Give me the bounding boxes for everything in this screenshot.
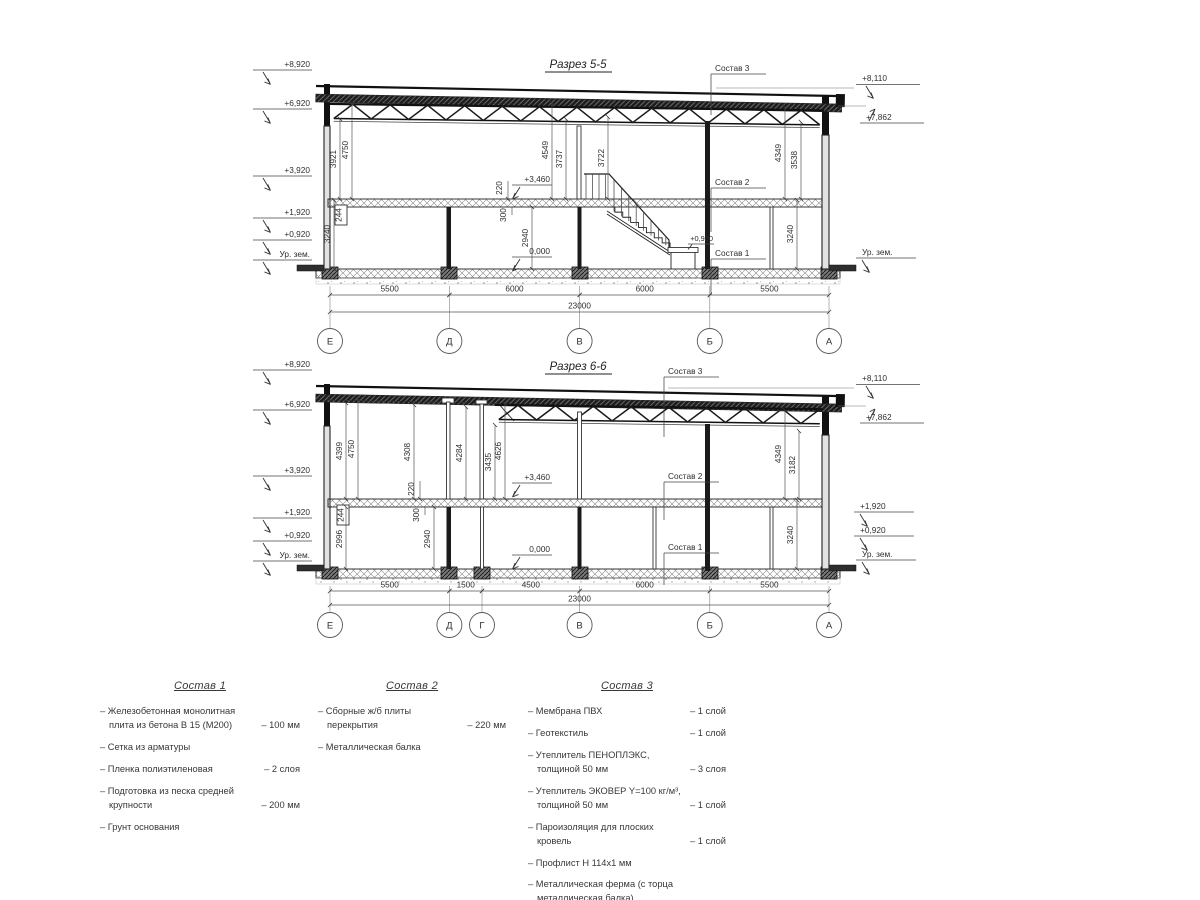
legend-item: Профлист Н 114х1 мм <box>528 857 726 871</box>
dim-label: 23000 <box>568 595 591 604</box>
column-b <box>705 424 710 571</box>
legend-item: Утеплитель ПЕНОПЛЭКС, толщиной 50 мм– 3 … <box>528 749 726 777</box>
axis-label: Е <box>327 337 333 348</box>
drawing-element <box>263 520 271 533</box>
dim-label: 5500 <box>381 285 400 294</box>
elevation-label: +8,920 <box>284 59 310 69</box>
drawing-element <box>836 394 845 407</box>
level-marks: +3,460 0,000 <box>512 472 552 569</box>
elevation-label: +0,920 <box>284 530 310 540</box>
dim-label: 4626 <box>494 441 503 460</box>
callout-label: Состав 1 <box>715 248 750 258</box>
drawing-element <box>513 485 521 497</box>
dim-label: 2996 <box>335 529 344 548</box>
elevation-label: +6,920 <box>284 399 310 409</box>
material-value: – 3 слоя <box>690 763 726 777</box>
right-wall <box>822 95 829 135</box>
dim-label: 1500 <box>457 581 476 590</box>
material-name: Металлическая ферма (с торца металлическ… <box>528 878 726 900</box>
material-name: Пароизоляция для плоских кровель <box>528 821 690 849</box>
legend-item: Металлическая балка <box>318 741 506 755</box>
drawing-element <box>862 260 870 273</box>
dim-label: 4284 <box>455 443 464 462</box>
dim-label: 6000 <box>505 285 524 294</box>
staircase <box>584 174 698 269</box>
floor-slab <box>328 499 822 507</box>
drawing-element <box>297 565 324 571</box>
dimension-chain: 5500 6000 6000 5500 23000 <box>330 285 829 329</box>
dim-label: 3737 <box>555 149 564 168</box>
drawing-element <box>316 386 842 396</box>
material-name: Профлист Н 114х1 мм <box>528 857 726 871</box>
left-wall <box>324 84 330 126</box>
dim-label: 4549 <box>541 140 550 159</box>
dim-label: 2940 <box>423 529 432 548</box>
dim-label: 220 <box>495 181 504 195</box>
material-name: Грунт основания <box>100 821 300 835</box>
material-name: Утеплитель ПЕНОПЛЭКС, толщиной 50 мм <box>528 749 690 777</box>
section-title: Разрез 5-5 <box>550 59 608 71</box>
dim-label: 6000 <box>636 581 655 590</box>
drawing-element <box>862 562 870 575</box>
dim-label: 4399 <box>335 441 344 460</box>
dim-label: 4349 <box>774 444 783 463</box>
axis-label: В <box>576 621 582 632</box>
legend-sostav-1: Состав 1 Железобетонная монолитная плита… <box>100 680 300 843</box>
elevation-label: Ур. зем. <box>280 249 310 259</box>
drawing-element <box>607 214 670 255</box>
legend-item: Пароизоляция для плоских кровель– 1 слой <box>528 821 726 849</box>
drawing-element <box>263 220 271 233</box>
legend-item: Геотекстиль– 1 слой <box>528 727 726 741</box>
column <box>447 507 452 569</box>
dim-label: 5500 <box>760 285 779 294</box>
material-name: Утеплитель ЭКОВЕР Y=100 кг/м³, толщиной … <box>528 785 690 813</box>
elevation-label: +7,862 <box>866 112 892 122</box>
column-b <box>705 121 710 269</box>
material-value: – 200 мм <box>261 799 300 813</box>
legend-item: Железобетонная монолитная плита из бетон… <box>100 705 300 733</box>
dim-label: 5500 <box>381 581 400 590</box>
column <box>578 412 582 499</box>
dim-label: 3921 <box>329 149 338 168</box>
stair-handrail <box>584 174 669 247</box>
legend-item: Сборные ж/б плиты перекрытия– 220 мм <box>318 705 506 733</box>
roof-truss <box>495 405 823 427</box>
axis-label: Д <box>446 337 453 348</box>
callout-label: Состав 2 <box>715 177 750 187</box>
material-name: Подготовка из песка средней крупности <box>100 785 261 813</box>
callout-sostav-2: Состав 2 <box>664 471 719 520</box>
dim-label: 4349 <box>774 143 783 162</box>
material-value: – 1 слой <box>690 705 726 719</box>
elevation-label: Ур. зем. <box>280 550 310 560</box>
level-label: +0,900 <box>690 234 713 243</box>
elevation-label: +1,920 <box>860 501 886 511</box>
dim-label: 2940 <box>521 228 530 247</box>
elevation-label: +0,920 <box>860 525 886 535</box>
legend-item: Металлическая ферма (с торца металлическ… <box>528 878 726 900</box>
drawing-element <box>316 86 842 96</box>
section-6-6: Разрез 6-6 Состав 3 Состав 2 Состав 1 <box>253 359 924 638</box>
legend-item: Сетка из арматуры <box>100 741 300 755</box>
dim-label: 3240 <box>786 224 795 243</box>
elevation-label: Ур. зем. <box>862 549 892 559</box>
elevation-label: +8,920 <box>284 359 310 369</box>
callout-label: Состав 3 <box>715 63 750 73</box>
legend-sostav-2: Состав 2 Сборные ж/б плиты перекрытия– 2… <box>318 680 506 763</box>
axis-label: А <box>826 621 833 632</box>
material-value: – 220 мм <box>467 719 506 733</box>
level-marks: +3,460 0,000 +0,900 <box>512 174 714 271</box>
drawing-element <box>263 372 271 385</box>
partition <box>770 507 773 569</box>
drawing-element <box>263 563 271 576</box>
dim-label: 4750 <box>347 439 356 458</box>
dim-label: 5500 <box>760 581 779 590</box>
partition <box>653 507 656 569</box>
dim-label: 244 <box>335 208 344 222</box>
material-name: Пленка полиэтиленовая <box>100 763 264 777</box>
drawing-element <box>822 135 829 269</box>
drawing-element <box>822 435 829 569</box>
elevation-label: +6,920 <box>284 98 310 108</box>
elevation-label: +8,110 <box>862 373 887 383</box>
drawing-element <box>263 242 271 255</box>
floor-slab <box>328 199 822 207</box>
section-title: Разрез 6-6 <box>550 361 608 373</box>
drawing-element <box>513 187 521 199</box>
material-name: Сетка из арматуры <box>100 741 300 755</box>
column-capital <box>476 400 487 404</box>
drawing-element <box>324 126 330 269</box>
axis-label: Д <box>446 621 453 632</box>
elevation-label: +3,920 <box>284 465 310 475</box>
material-value: – 100 мм <box>261 719 300 733</box>
material-value: – 1 слой <box>690 799 726 813</box>
drawing-element <box>263 111 271 124</box>
dim-label: 3240 <box>786 525 795 544</box>
drawing-element <box>829 265 856 271</box>
legend-sostav-3: Состав 3 Мембрана ПВХ– 1 слой Геотекстил… <box>528 680 726 900</box>
material-name: Геотекстиль <box>528 727 690 741</box>
callout-label: Состав 1 <box>668 542 703 552</box>
drawing-element <box>263 178 271 191</box>
axis-label: А <box>826 337 833 348</box>
drawing-element <box>324 426 330 569</box>
dim-label: 3538 <box>790 150 799 169</box>
level-label: +3,460 <box>524 472 550 482</box>
section-5-5: Разрез 5-5 Состав 3 Состав 2 <box>253 59 924 354</box>
material-name: Мембрана ПВХ <box>528 705 690 719</box>
legend-item: Пленка полиэтиленовая– 2 слоя <box>100 763 300 777</box>
axis-label: Г <box>479 621 484 632</box>
drawing-element <box>263 412 271 425</box>
elevation-marks-left: +8,920 +6,920 +3,920 +1,920 +0,920 Ур. з… <box>253 359 312 576</box>
material-value: – 1 слой <box>690 727 726 741</box>
material-value: – 1 слой <box>690 835 726 849</box>
right-wall <box>822 395 829 435</box>
legend-item: Подготовка из песка средней крупности– 2… <box>100 785 300 813</box>
column <box>578 507 582 569</box>
elevation-label: Ур. зем. <box>862 247 892 257</box>
legend-title: Состав 2 <box>318 680 506 692</box>
elevation-label: +1,920 <box>284 507 310 517</box>
level-label: 0,000 <box>529 544 550 554</box>
column <box>481 507 484 569</box>
column <box>480 404 484 499</box>
elevation-marks-left: +8,920 +6,920 +3,920 +1,920 +0,920 Ур. з… <box>253 59 312 275</box>
legend-item: Мембрана ПВХ– 1 слой <box>528 705 726 719</box>
drawing-element <box>607 207 670 248</box>
material-name: Металлическая балка <box>318 741 506 755</box>
stair-wall <box>577 126 581 199</box>
drawing-element <box>263 262 271 275</box>
dim-label: 23000 <box>568 302 591 311</box>
callout-label: Состав 3 <box>668 366 703 376</box>
dim-label: 6000 <box>636 285 655 294</box>
dim-label: 3722 <box>597 148 606 167</box>
dim-label: 4500 <box>522 581 541 590</box>
drawing-element <box>836 94 845 107</box>
drawing-element <box>297 265 324 271</box>
level-label: +3,460 <box>524 174 550 184</box>
elevation-label: +8,110 <box>862 73 887 83</box>
material-value: – 2 слоя <box>264 763 300 777</box>
elevation-label: +7,862 <box>866 412 892 422</box>
drawing-element <box>263 478 271 491</box>
vertical-dimensions: 4750 4399 4308 4284 3435 4626 4349 3182 … <box>335 399 799 569</box>
dimension-chain: 5500 1500 4500 6000 5500 23000 <box>330 581 829 613</box>
dim-label: 300 <box>412 508 421 522</box>
legend-title: Состав 3 <box>528 680 726 692</box>
axis-label: Е <box>327 621 333 632</box>
stair-landing <box>668 248 698 253</box>
partition <box>770 207 773 269</box>
dim-label: 300 <box>499 208 508 222</box>
left-wall <box>324 384 330 426</box>
elevation-label: +0,920 <box>284 229 310 239</box>
drawing-element <box>263 72 271 85</box>
axis-label: Б <box>707 621 713 632</box>
dim-label: 220 <box>407 482 416 496</box>
dim-label: 3240 <box>323 224 332 243</box>
drawing-element <box>513 557 521 569</box>
material-name: Железобетонная монолитная плита из бетон… <box>100 705 261 733</box>
column <box>578 207 582 269</box>
legend-item: Утеплитель ЭКОВЕР Y=100 кг/м³, толщиной … <box>528 785 726 813</box>
axis-label: В <box>576 337 582 348</box>
dim-label: 244 <box>337 508 346 522</box>
drawing-element <box>263 543 271 556</box>
elevation-label: +3,920 <box>284 165 310 175</box>
level-label: 0,000 <box>529 246 550 256</box>
drawing-element <box>866 386 874 399</box>
drawing-sheet: Разрез 5-5 Состав 3 Состав 2 <box>0 0 1200 900</box>
drawing-element <box>829 565 856 571</box>
dim-label: 3182 <box>788 455 797 474</box>
elevation-label: +1,920 <box>284 207 310 217</box>
axis-bubbles: Е Д Г В Б А <box>318 613 842 638</box>
legend-item: Грунт основания <box>100 821 300 835</box>
material-name: Сборные ж/б плиты перекрытия <box>318 705 467 733</box>
drawing-element <box>866 86 874 99</box>
dim-label: 4308 <box>403 442 412 461</box>
legend-title: Состав 1 <box>100 680 300 692</box>
callout-label: Состав 2 <box>668 471 703 481</box>
column <box>447 402 451 499</box>
dim-label: 4750 <box>341 140 350 159</box>
axis-bubbles: Е Д В Б А <box>318 329 842 354</box>
column <box>447 207 452 269</box>
dim-label: 3435 <box>484 452 493 471</box>
axis-label: Б <box>707 337 713 348</box>
